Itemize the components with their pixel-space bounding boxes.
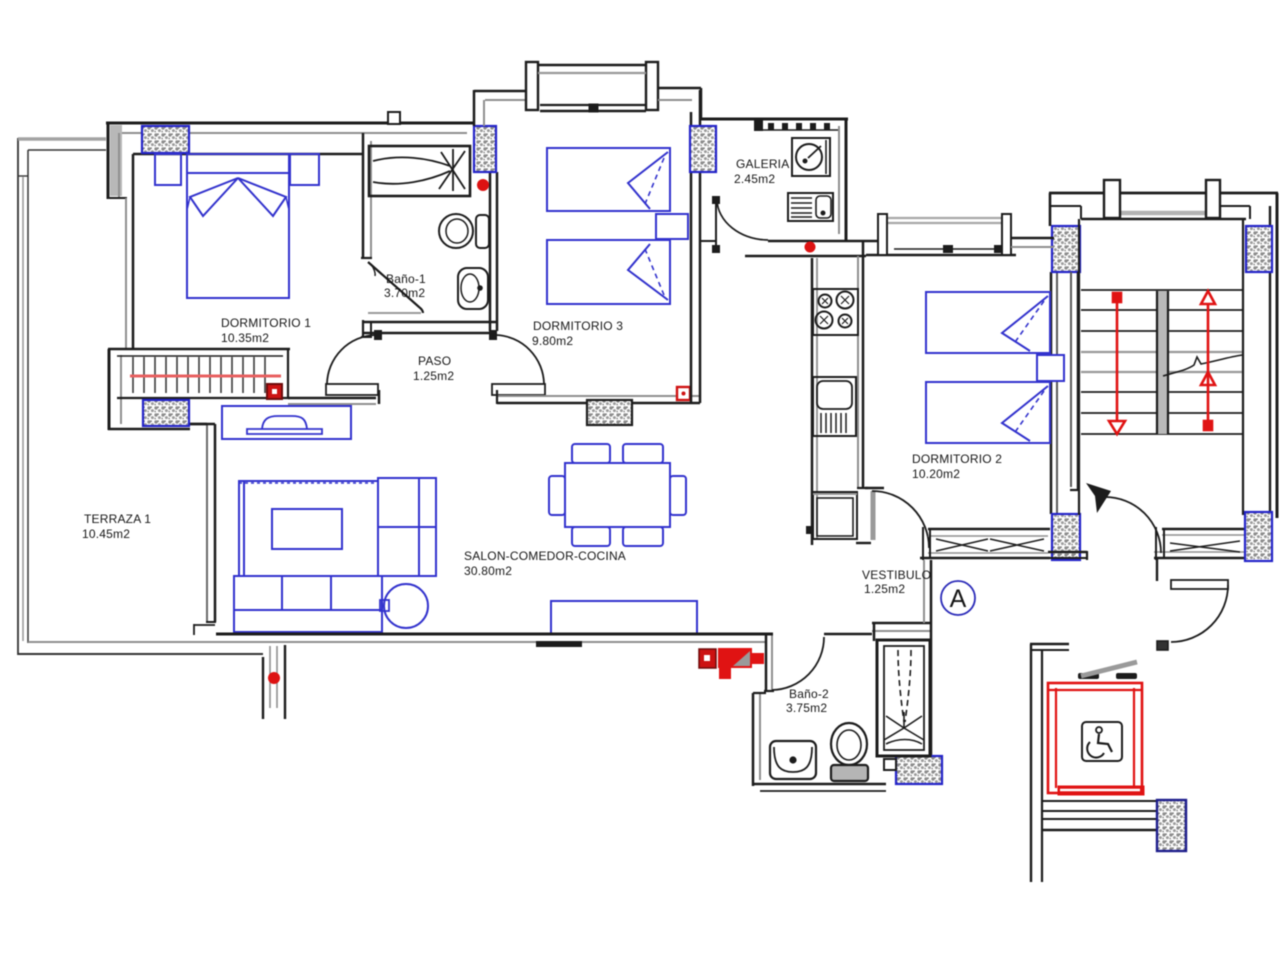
- svg-text:9.80m2: 9.80m2: [532, 334, 573, 348]
- svg-text:30.80m2: 30.80m2: [464, 564, 512, 578]
- svg-text:VESTIBULO: VESTIBULO: [862, 568, 931, 582]
- svg-text:2.45m2: 2.45m2: [734, 172, 775, 186]
- svg-text:DORMITORIO 1: DORMITORIO 1: [221, 316, 311, 330]
- svg-text:1.25m2: 1.25m2: [864, 582, 905, 596]
- svg-text:TERRAZA 1: TERRAZA 1: [84, 512, 151, 526]
- svg-text:DORMITORIO 2: DORMITORIO 2: [912, 452, 1002, 466]
- svg-text:10.45m2: 10.45m2: [82, 527, 130, 541]
- svg-text:3.70m2: 3.70m2: [384, 286, 425, 300]
- svg-text:10.35m2: 10.35m2: [221, 331, 269, 345]
- svg-text:PASO: PASO: [418, 354, 451, 368]
- svg-text:Baño-1: Baño-1: [386, 272, 426, 286]
- svg-text:10.20m2: 10.20m2: [912, 467, 960, 481]
- svg-text:3.75m2: 3.75m2: [786, 701, 827, 715]
- svg-text:SALON-COMEDOR-COCINA: SALON-COMEDOR-COCINA: [464, 549, 626, 563]
- svg-text:A: A: [950, 585, 967, 613]
- svg-text:DORMITORIO 3: DORMITORIO 3: [533, 319, 623, 333]
- svg-text:GALERIA: GALERIA: [736, 157, 789, 171]
- svg-text:Baño-2: Baño-2: [789, 687, 829, 701]
- svg-text:1.25m2: 1.25m2: [413, 369, 454, 383]
